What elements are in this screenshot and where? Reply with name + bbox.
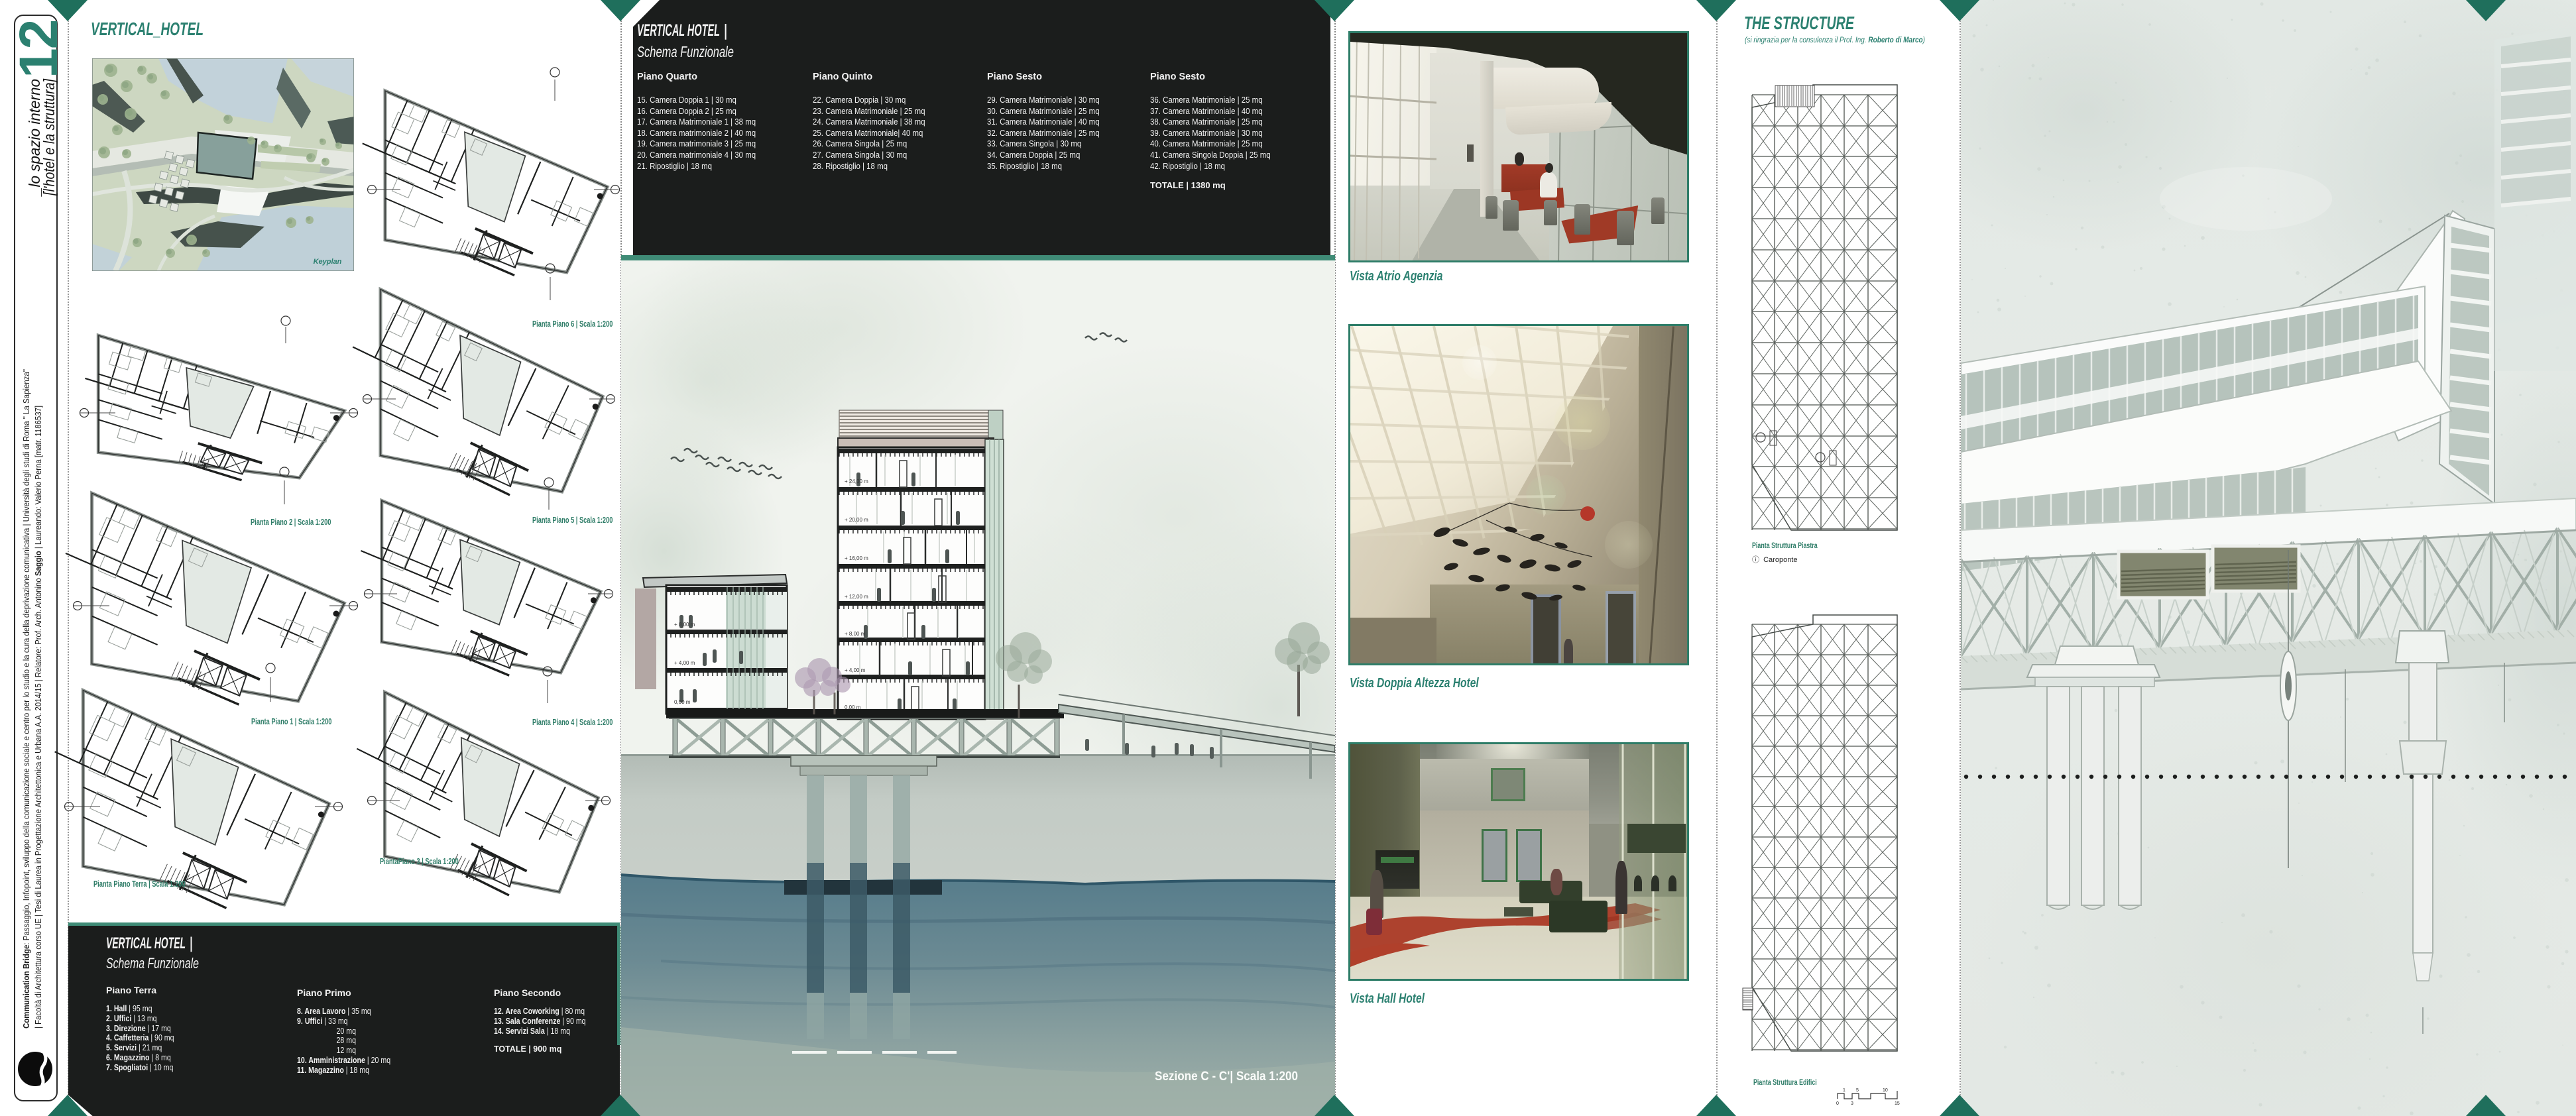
svg-text:1: 1: [1843, 1088, 1845, 1093]
svg-text:10: 10: [1883, 1088, 1888, 1093]
svg-text:VERTICAL HOTEL: VERTICAL HOTEL: [106, 934, 186, 952]
svg-text:3: 3: [1851, 1101, 1853, 1105]
svg-text:Schema Funzionale: Schema Funzionale: [637, 43, 734, 60]
svg-text:0: 0: [1836, 1101, 1839, 1105]
svg-text:THE STRUCTURE: THE STRUCTURE: [1744, 13, 1855, 33]
svg-text:|: |: [189, 934, 193, 952]
svg-text:|: |: [723, 21, 728, 40]
svg-text:5: 5: [1856, 1088, 1859, 1093]
svg-text:Schema Funzionale: Schema Funzionale: [106, 955, 199, 972]
svg-text:15: 15: [1895, 1101, 1900, 1105]
svg-text:VERTICAL HOTEL: VERTICAL HOTEL: [637, 21, 720, 40]
svg-text:(si ringrazia per la consulenz: (si ringrazia per la consulenza il Prof.…: [1745, 35, 1925, 44]
